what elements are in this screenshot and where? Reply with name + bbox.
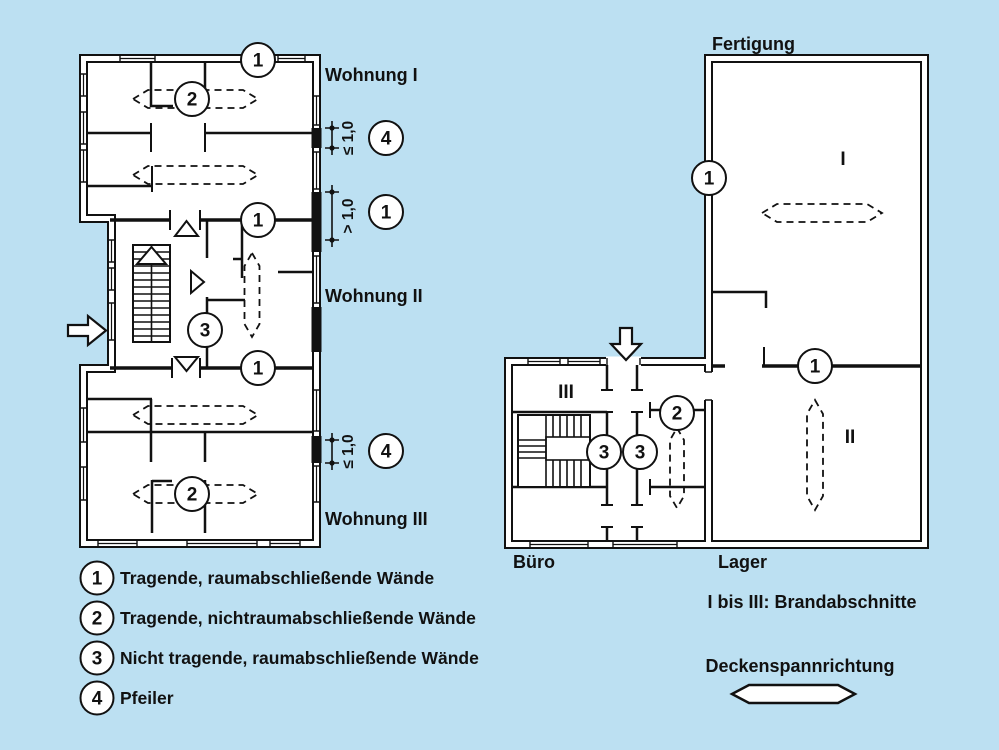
area-label-buero: Büro xyxy=(513,552,555,572)
right-floor-plan: 1 1 2 3 3 I II III Fertigung Büro Lager xyxy=(505,34,928,572)
marker-1: 1 xyxy=(369,195,403,229)
marker-4: 4 xyxy=(369,121,403,155)
dimension-text: > 1,0 xyxy=(340,199,357,234)
caption-span-direction: Deckenspannrichtung xyxy=(705,656,894,676)
diagram-canvas: ≤ 1,0 > 1,0 ≤ 1,0 1 2 4 1 1 3 1 2 4 Wohn… xyxy=(0,0,999,750)
legend-number: 2 xyxy=(92,609,103,630)
fire-compartment-diagram: ≤ 1,0 > 1,0 ≤ 1,0 1 2 4 1 1 3 1 2 4 Wohn… xyxy=(0,0,999,750)
pier xyxy=(312,307,322,352)
marker-4: 4 xyxy=(369,434,403,468)
area-label-lager: Lager xyxy=(718,552,767,572)
captions: I bis III: Brandabschnitte Deckenspannri… xyxy=(705,592,916,703)
marker-number: 1 xyxy=(381,203,392,224)
door-gap xyxy=(704,372,714,400)
left-floor-plan: ≤ 1,0 > 1,0 ≤ 1,0 1 2 4 1 1 3 1 2 4 Wohn… xyxy=(68,43,428,547)
compartment-label-I: I xyxy=(840,149,845,170)
marker-2: 2 xyxy=(175,82,209,116)
marker-3: 3 xyxy=(587,435,621,469)
marker-number: 2 xyxy=(672,404,683,425)
legend-item-4: 4 Pfeiler xyxy=(81,682,174,715)
pier xyxy=(312,436,322,463)
marker-number: 3 xyxy=(635,443,646,464)
marker-3: 3 xyxy=(188,313,222,347)
marker-number: 3 xyxy=(599,443,610,464)
marker-number: 1 xyxy=(253,359,264,380)
marker-number: 1 xyxy=(253,211,264,232)
marker-number: 1 xyxy=(704,169,715,190)
marker-3: 3 xyxy=(623,435,657,469)
pier xyxy=(312,192,322,252)
legend-label: Tragende, raumabschließende Wände xyxy=(120,568,434,588)
legend-item-1: 1 Tragende, raumabschließende Wände xyxy=(81,562,435,595)
marker-number: 3 xyxy=(200,321,211,342)
legend-item-2: 2 Tragende, nichtraumabschließende Wände xyxy=(81,602,477,635)
dimension-wall: > 1,0 xyxy=(325,185,357,247)
marker-1: 1 xyxy=(798,349,832,383)
span-direction-arrow-icon xyxy=(732,685,855,703)
marker-1: 1 xyxy=(241,351,275,385)
marker-1: 1 xyxy=(241,203,275,237)
legend: 1 Tragende, raumabschließende Wände 2 Tr… xyxy=(81,562,480,715)
apartment-label-2: Wohnung II xyxy=(325,286,423,306)
building-label-fertigung: Fertigung xyxy=(712,34,795,54)
marker-number: 4 xyxy=(381,129,392,150)
legend-label: Tragende, nichtraumabschließende Wände xyxy=(120,608,476,628)
legend-number: 1 xyxy=(92,569,103,590)
dimension-pier-top: ≤ 1,0 xyxy=(325,121,357,155)
marker-number: 2 xyxy=(187,90,198,111)
legend-label: Nicht tragende, raumabschließende Wände xyxy=(120,648,479,668)
office-staircase xyxy=(518,415,590,487)
pier xyxy=(312,128,322,148)
left-plan-staircase xyxy=(133,245,170,342)
entrance-arrow-left-plan xyxy=(68,316,106,345)
legend-number: 4 xyxy=(92,689,103,710)
apartment-label-1: Wohnung I xyxy=(325,65,418,85)
marker-number: 1 xyxy=(810,357,821,378)
legend-number: 3 xyxy=(92,649,103,670)
dimension-pier-bottom: ≤ 1,0 xyxy=(325,433,357,470)
marker-1: 1 xyxy=(692,161,726,195)
legend-label: Pfeiler xyxy=(120,688,174,708)
marker-number: 2 xyxy=(187,485,198,506)
compartment-label-III: III xyxy=(558,382,574,403)
marker-2: 2 xyxy=(175,477,209,511)
marker-number: 4 xyxy=(381,442,392,463)
marker-1: 1 xyxy=(241,43,275,77)
marker-number: 1 xyxy=(253,51,264,72)
apartment-label-3: Wohnung III xyxy=(325,509,428,529)
marker-2: 2 xyxy=(660,396,694,430)
entrance-arrow-right-plan xyxy=(611,328,641,360)
dimension-text: ≤ 1,0 xyxy=(340,434,357,468)
legend-item-3: 3 Nicht tragende, raumabschließende Wänd… xyxy=(81,642,480,675)
dimension-text: ≤ 1,0 xyxy=(340,121,357,155)
compartment-label-II: II xyxy=(845,427,856,448)
caption-fire-compartments: I bis III: Brandabschnitte xyxy=(707,592,916,612)
